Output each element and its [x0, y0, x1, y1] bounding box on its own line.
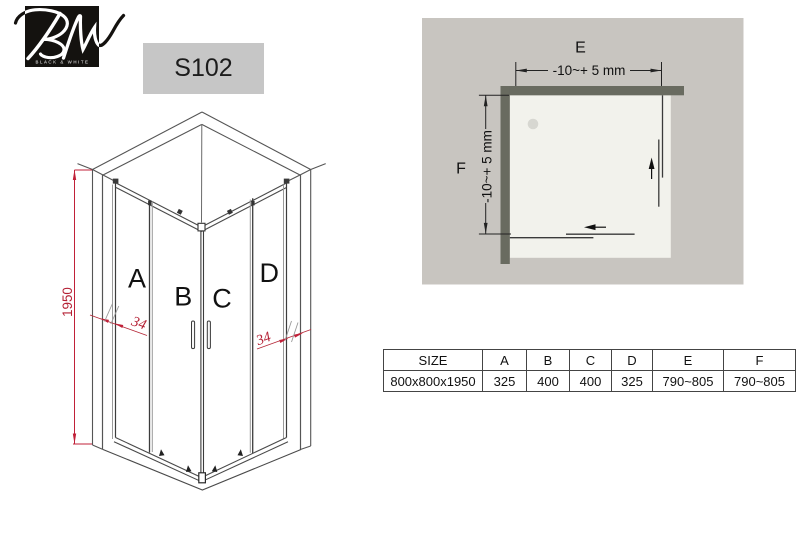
svg-text:E: E	[575, 40, 586, 57]
svg-text:-10~+ 5 mm: -10~+ 5 mm	[480, 130, 495, 203]
svg-text:-10~+ 5 mm: -10~+ 5 mm	[553, 63, 626, 78]
svg-text:F: F	[456, 160, 466, 177]
